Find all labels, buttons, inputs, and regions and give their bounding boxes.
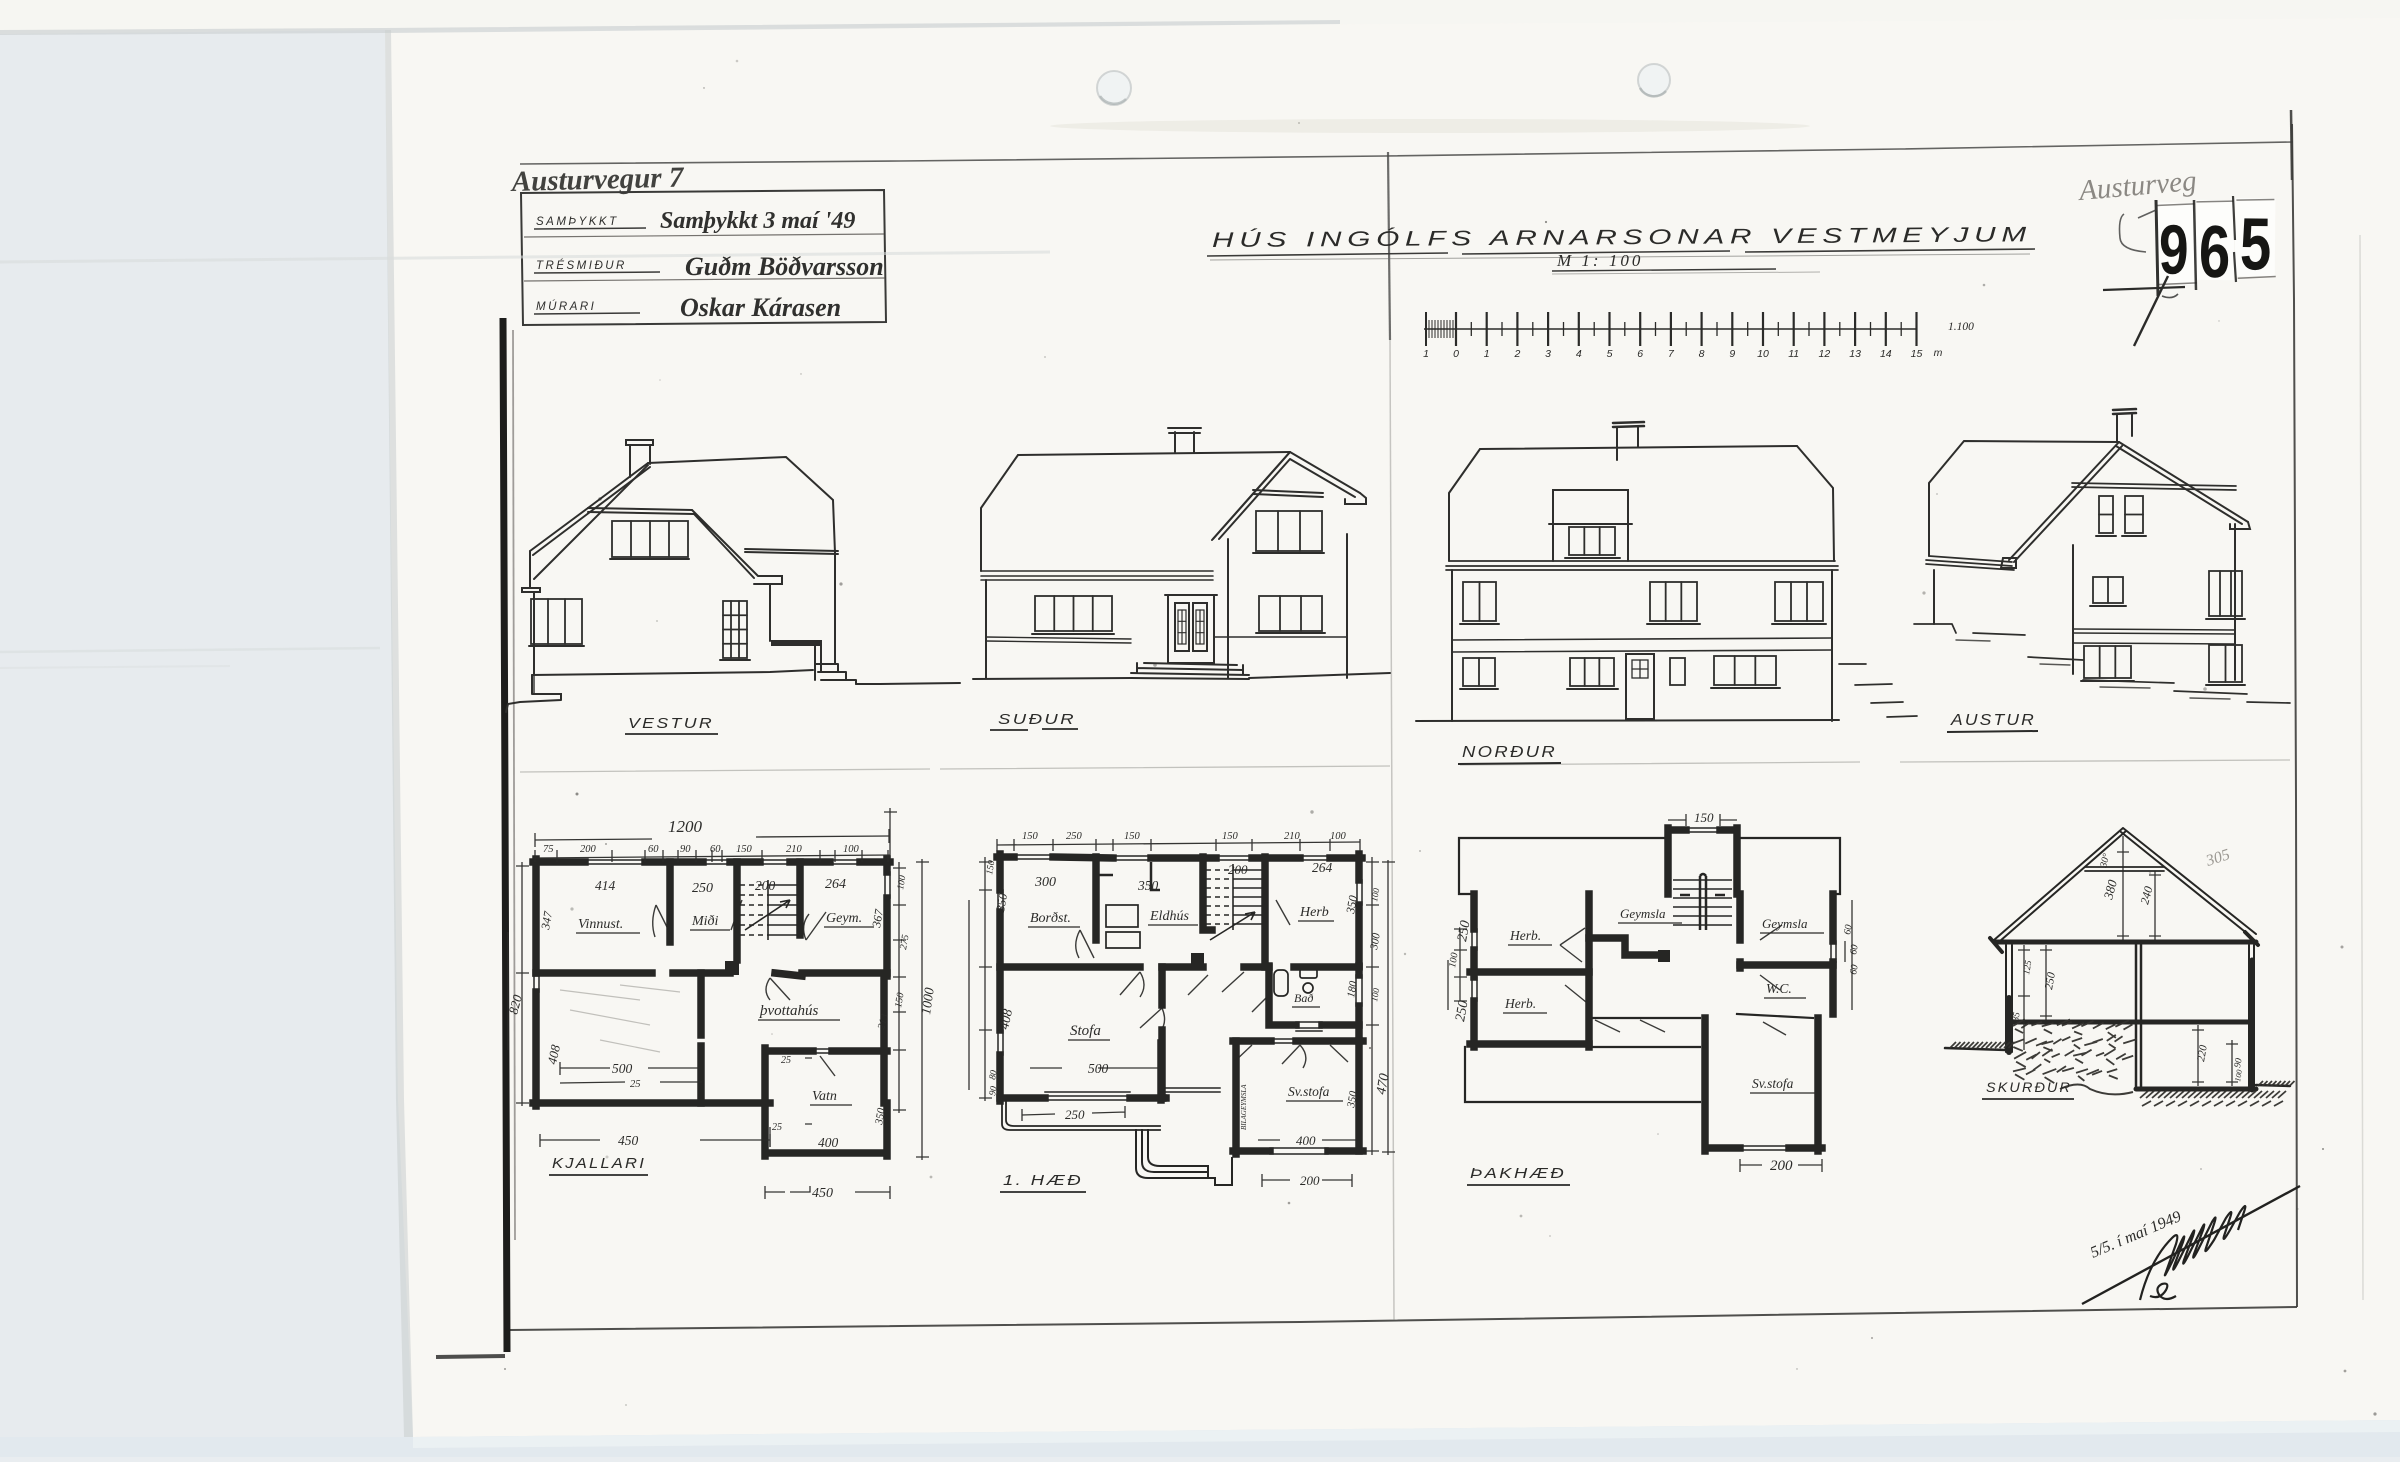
svg-text:6: 6 [1637,348,1643,360]
svg-text:150: 150 [1694,810,1714,825]
svg-text:Herb: Herb [1299,905,1329,920]
svg-text:210: 210 [1284,831,1301,842]
svg-text:500: 500 [1088,1061,1109,1076]
svg-text:60: 60 [1848,944,1861,956]
svg-text:75: 75 [543,844,554,855]
svg-text:5: 5 [2240,203,2272,285]
svg-text:9: 9 [2159,212,2189,290]
svg-text:Samþykkt 3 maí '49: Samþykkt 3 maí '49 [660,208,855,234]
svg-text:Bað: Bað [1294,991,1313,1005]
svg-text:500: 500 [612,1061,633,1076]
svg-text:Geymsla: Geymsla [1620,906,1666,921]
svg-text:250: 250 [1066,831,1083,842]
svg-text:1: 1 [1484,348,1490,360]
svg-text:25: 25 [772,1122,782,1133]
svg-text:200: 200 [580,844,597,855]
svg-text:þvottahús: þvottahús [758,1003,818,1019]
svg-text:W.C.: W.C. [1766,981,1792,996]
svg-text:Geym.: Geym. [826,911,862,926]
svg-text:Stofa: Stofa [1070,1023,1101,1039]
svg-text:Herb.: Herb. [1504,996,1536,1011]
svg-text:90: 90 [680,844,691,855]
svg-text:80: 80 [988,1069,1000,1080]
svg-text:14: 14 [1880,348,1892,360]
svg-text:264: 264 [1312,860,1333,875]
svg-text:25: 25 [781,1055,791,1066]
svg-text:60: 60 [1842,924,1855,936]
svg-text:Vatn: Vatn [812,1089,837,1104]
svg-text:4: 4 [1576,348,1582,360]
svg-text:m: m [1934,347,1943,359]
svg-text:150: 150 [1222,831,1239,842]
svg-text:350: 350 [1137,878,1159,893]
svg-text:Herb.: Herb. [1509,928,1541,943]
svg-text:414: 414 [595,878,616,893]
svg-text:6: 6 [2199,210,2231,292]
svg-text:SUÐUR: SUÐUR [998,711,1076,728]
svg-text:25: 25 [630,1079,641,1090]
svg-text:Sv.stofa: Sv.stofa [1752,1076,1794,1091]
svg-text:300: 300 [1034,875,1056,890]
svg-text:200: 200 [755,878,776,893]
svg-text:ÞAKHÆÐ: ÞAKHÆÐ [1470,1165,1566,1182]
svg-text:VESTUR: VESTUR [628,715,714,732]
svg-text:210: 210 [786,844,803,855]
svg-text:8: 8 [1699,348,1705,360]
svg-text:M 1: 100: M 1: 100 [1556,251,1643,270]
svg-text:Vinnust.: Vinnust. [578,917,623,932]
svg-text:1200: 1200 [668,817,703,836]
svg-text:400: 400 [1296,1133,1316,1148]
svg-text:9: 9 [1729,348,1735,360]
svg-text:15: 15 [1911,348,1923,360]
svg-text:MÚRARI: MÚRARI [536,300,596,313]
svg-text:Geymsla: Geymsla [1762,916,1808,931]
svg-text:Borðst.: Borðst. [1030,911,1071,926]
svg-text:1. HÆÐ: 1. HÆÐ [1003,1172,1083,1189]
svg-text:150: 150 [1022,831,1039,842]
svg-text:1.100: 1.100 [1948,321,1974,333]
svg-text:200: 200 [1770,1158,1793,1174]
svg-text:3: 3 [1545,348,1551,360]
svg-text:Oskar Kárasen: Oskar Kárasen [680,293,841,322]
svg-text:100: 100 [843,844,860,855]
svg-text:60: 60 [648,844,659,855]
svg-text:400: 400 [818,1135,839,1150]
svg-text:250: 250 [1065,1107,1085,1122]
svg-text:0: 0 [1453,348,1459,360]
svg-text:150: 150 [1124,831,1141,842]
svg-text:200: 200 [1300,1173,1320,1188]
svg-text:10: 10 [1757,348,1769,360]
svg-text:90: 90 [988,1085,1000,1096]
svg-text:100: 100 [1330,831,1347,842]
svg-text:12: 12 [1819,348,1831,360]
svg-text:Miði: Miði [691,914,719,929]
svg-text:TRÉSMIÐUR: TRÉSMIÐUR [536,259,627,272]
svg-text:90: 90 [2233,1057,2245,1068]
svg-text:450: 450 [618,1133,639,1148]
svg-text:Eldhús: Eldhús [1149,909,1189,924]
svg-text:5: 5 [1607,348,1613,360]
svg-text:NORÐUR: NORÐUR [1462,744,1557,761]
svg-text:SAMÞYKKT: SAMÞYKKT [536,216,619,228]
svg-text:60: 60 [1848,964,1861,976]
svg-text:60: 60 [710,844,721,855]
svg-text:150: 150 [736,844,753,855]
svg-text:200: 200 [1228,862,1248,877]
svg-text:2: 2 [1513,348,1520,360]
svg-text:450: 450 [812,1186,833,1201]
svg-text:1: 1 [1423,348,1429,360]
svg-text:AUSTUR: AUSTUR [1950,712,2036,729]
svg-text:13: 13 [1849,348,1861,360]
svg-text:KJALLARI: KJALLARI [552,1155,646,1172]
svg-text:264: 264 [825,877,846,892]
svg-text:11: 11 [1788,348,1799,360]
svg-text:Sv.stofa: Sv.stofa [1288,1084,1330,1099]
svg-text:85: 85 [2011,1011,2023,1022]
svg-text:250: 250 [692,881,713,896]
svg-text:SKURÐUR: SKURÐUR [1986,1080,2072,1095]
svg-text:BILAGEYMSLA: BILAGEYMSLA [1240,1084,1248,1130]
